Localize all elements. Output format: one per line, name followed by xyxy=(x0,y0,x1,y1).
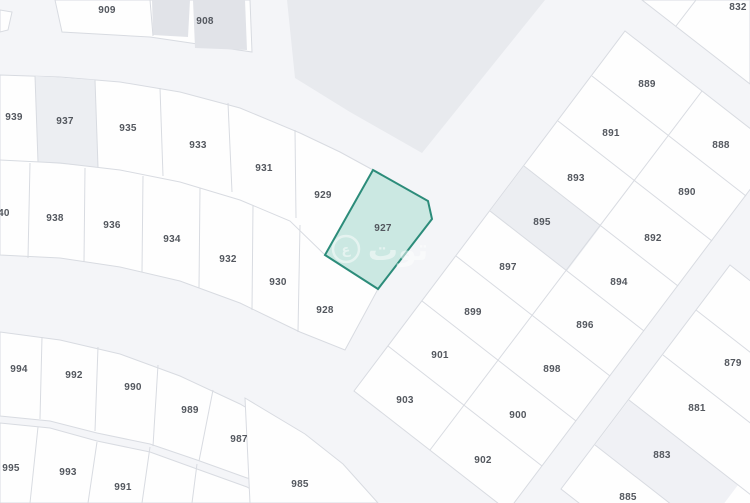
parcel-label-909: 909 xyxy=(98,5,116,16)
parcel-label-894: 894 xyxy=(610,277,628,288)
parcel-label-939: 939 xyxy=(5,112,23,123)
parcel-label-991: 991 xyxy=(114,482,132,493)
parcel-label-897: 897 xyxy=(499,262,517,273)
parcel-map-canvas[interactable]: 9099089399379359339319299409389369349329… xyxy=(0,0,750,503)
parcel-map-viewport[interactable]: 9099089399379359339319299409389369349329… xyxy=(0,0,750,503)
parcel-label-932: 932 xyxy=(219,254,237,265)
parcel-label-995: 995 xyxy=(2,463,20,474)
parcel-label-938: 938 xyxy=(46,213,64,224)
parcel-label-902: 902 xyxy=(474,455,492,466)
parcel-label-908: 908 xyxy=(196,16,214,27)
parcel-label-832: 832 xyxy=(729,2,747,13)
parcel-label-888: 888 xyxy=(712,140,730,151)
parcel-label-930: 930 xyxy=(269,277,287,288)
parcel-label-989: 989 xyxy=(181,405,199,416)
parcel-label-937: 937 xyxy=(56,116,74,127)
parcel-label-885: 885 xyxy=(619,492,637,503)
parcel-label-900: 900 xyxy=(509,410,527,421)
parcel-label-899: 899 xyxy=(464,307,482,318)
parcel-label-893: 893 xyxy=(567,173,585,184)
parcel-label-881: 881 xyxy=(688,403,706,414)
parcel-label-994: 994 xyxy=(10,364,28,375)
parcel-label-892: 892 xyxy=(644,233,662,244)
parcel-label-934: 934 xyxy=(163,234,181,245)
parcel-label-890: 890 xyxy=(678,187,696,198)
parcel-label-883: 883 xyxy=(653,450,671,461)
parcel-label-896: 896 xyxy=(576,320,594,331)
parcel-label-901: 901 xyxy=(431,350,449,361)
parcel-label-931: 931 xyxy=(255,163,273,174)
parcel-label-993: 993 xyxy=(59,467,77,478)
parcel-label-929: 929 xyxy=(314,190,332,201)
watermark-ring-glyph: ع xyxy=(342,243,352,258)
parcel-label-940: 940 xyxy=(0,208,10,219)
parcel-label-895: 895 xyxy=(533,217,551,228)
parcel-label-879: 879 xyxy=(724,358,742,369)
parcel-label-891: 891 xyxy=(602,128,620,139)
parcel-label-889: 889 xyxy=(638,79,656,90)
building-909 xyxy=(152,0,190,37)
parcel-label-928: 928 xyxy=(316,305,334,316)
watermark-text: توت xyxy=(368,233,428,268)
parcel-label-992: 992 xyxy=(65,370,83,381)
parcel-label-903: 903 xyxy=(396,395,414,406)
parcel-label-898: 898 xyxy=(543,364,561,375)
parcel-label-985: 985 xyxy=(291,479,309,490)
parcel-label-990: 990 xyxy=(124,382,142,393)
parcel-label-987: 987 xyxy=(230,434,248,445)
parcel-label-933: 933 xyxy=(189,140,207,151)
parcel-label-936: 936 xyxy=(103,220,121,231)
parcel-label-935: 935 xyxy=(119,123,137,134)
